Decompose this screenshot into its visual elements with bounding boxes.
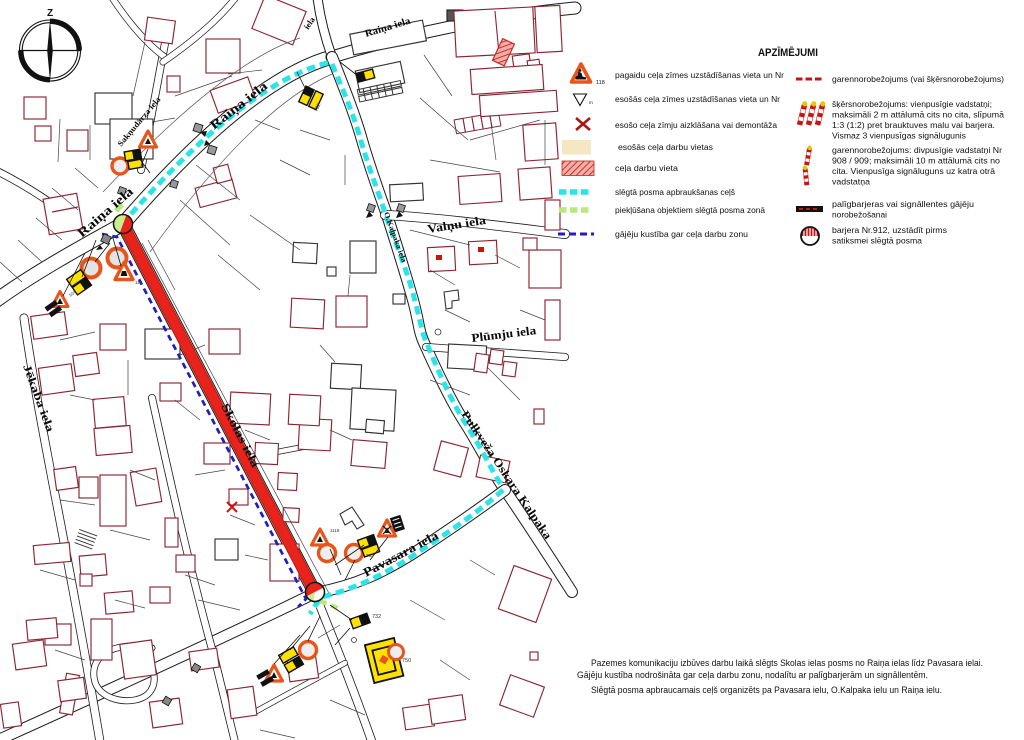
svg-text:Pazemes komunikaciju izbūves d: Pazemes komunikaciju izbūves darbu laikā…	[591, 658, 983, 668]
svg-text:118: 118	[596, 80, 605, 86]
svg-text:satiksmei slēgtā posma: satiksmei slēgtā posma	[832, 236, 922, 246]
svg-text:Gājēju kustība nodrošināta gar: Gājēju kustība nodrošināta gar ceļa darb…	[577, 670, 928, 680]
svg-text:šķērsnorobežojums: vienpusīgie: šķērsnorobežojums: vienpusīgie vadstatņi…	[832, 99, 992, 109]
svg-text:garennorobežojums (vai šķērsno: garennorobežojums (vai šķērsnorobežojums…	[832, 74, 1004, 84]
svg-text:732: 732	[372, 614, 381, 620]
svg-text:753: 753	[366, 553, 374, 558]
svg-text:m: m	[589, 100, 593, 105]
svg-text:Slēgtā posma apbraucamais ceļš: Slēgtā posma apbraucamais ceļš organizēt…	[591, 685, 942, 695]
svg-text:barjera Nr.912, uzstādīt pirms: barjera Nr.912, uzstādīt pirms	[832, 225, 947, 235]
svg-text:Z: Z	[47, 8, 53, 19]
svg-text:Vismaz 3 vienpusīgas signālugu: Vismaz 3 vienpusīgas signālugunis	[832, 131, 966, 141]
svg-text:vadstatņa: vadstatņa	[832, 177, 870, 187]
svg-text:palīgbarjeras vai signāllentes: palīgbarjeras vai signāllentes gājēju	[832, 199, 974, 209]
svg-text:ceļa darbu vieta: ceļa darbu vieta	[615, 163, 678, 173]
svg-text:cita. Vienpusīga signāluguns u: cita. Vienpusīga signāluguns uz katra ot…	[832, 166, 995, 176]
svg-text:esošās ceļa zīmes uzstādīšanas: esošās ceļa zīmes uzstādīšanas vieta un …	[615, 94, 780, 104]
svg-text:1118: 1118	[330, 528, 340, 533]
svg-text:esošo ceļa zīmju aizklāšana va: esošo ceļa zīmju aizklāšana vai demontāž…	[615, 120, 777, 130]
svg-text:1:3 (1:2) pret brauktuves malu: 1:3 (1:2) pret brauktuves malu vai barje…	[832, 120, 995, 130]
svg-text:garennorobežojums: divpusīgie: garennorobežojums: divpusīgie vadstatņi …	[832, 145, 1002, 155]
svg-text:piekļūšana objektiem slēgtā po: piekļūšana objektiem slēgtā posma zonā	[615, 205, 765, 215]
svg-text:norobežošanai: norobežošanai	[832, 210, 887, 220]
svg-text:750: 750	[402, 658, 411, 664]
svg-text:118: 118	[135, 280, 143, 285]
svg-text:APZĪMĒJUMI: APZĪMĒJUMI	[758, 47, 818, 59]
svg-text:gājēju kustība gar ceļa darbu: gājēju kustība gar ceļa darbu zonu	[615, 229, 748, 239]
svg-text:esošās ceļa darbu vietas: esošās ceļa darbu vietas	[618, 142, 713, 152]
svg-text:908 / 909; maksimāli 10 m attā: 908 / 909; maksimāli 10 m attālumā cits …	[832, 156, 1000, 166]
svg-text:maksimāli 2 m attālumā cits no: maksimāli 2 m attālumā cits no cita, slī…	[832, 110, 1004, 120]
svg-text:slēgtā posma apbraukšanas ceļš: slēgtā posma apbraukšanas ceļš	[615, 187, 735, 197]
svg-text:pagaidu ceļa zīmes uzstādīšana: pagaidu ceļa zīmes uzstādīšanas vieta un…	[615, 70, 784, 80]
